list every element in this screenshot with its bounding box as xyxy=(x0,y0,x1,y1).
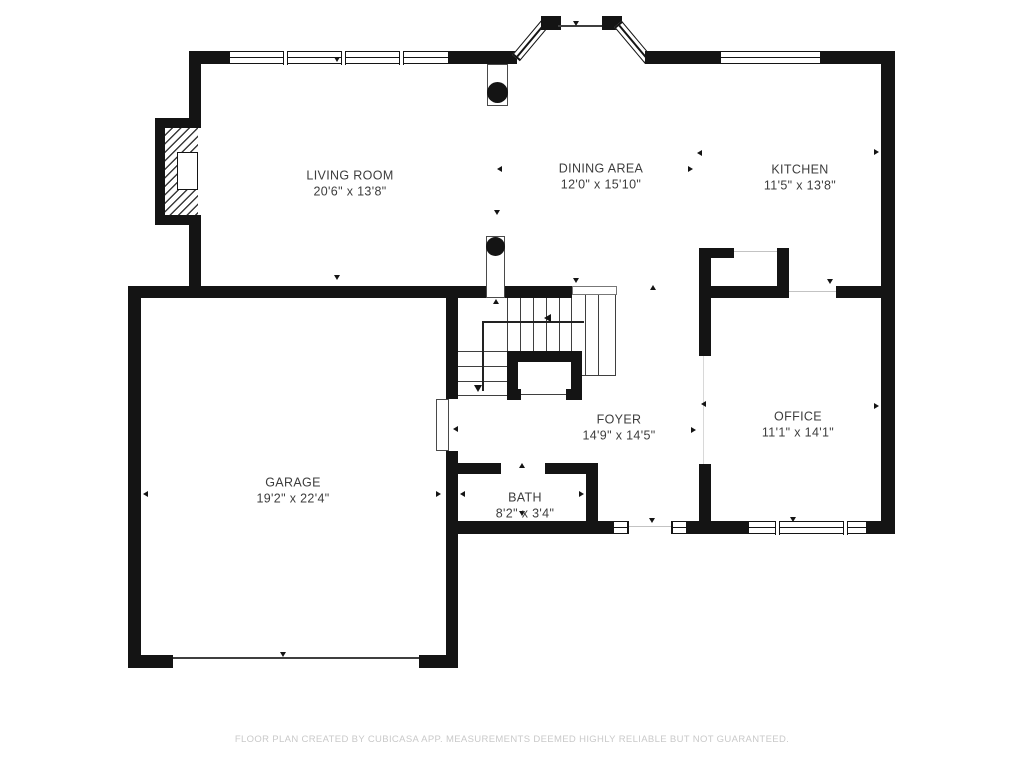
window-glass-line xyxy=(614,527,627,528)
marker-right-icon xyxy=(688,166,693,172)
door-leaf xyxy=(436,399,449,451)
window xyxy=(612,521,629,534)
wall-segment xyxy=(446,463,501,474)
room-dimensions: 19'2" x 22'4" xyxy=(256,491,329,507)
room-dimensions: 11'5" x 13'8" xyxy=(764,178,836,194)
marker-left-icon xyxy=(453,426,458,432)
room-name: GARAGE xyxy=(256,476,329,492)
under-stair-closet-wall xyxy=(507,389,521,400)
window-glass-line xyxy=(619,25,648,59)
wall-segment xyxy=(868,521,895,534)
window xyxy=(747,521,868,534)
marker-down-icon xyxy=(649,518,655,523)
column xyxy=(486,237,505,256)
room-dimensions: 12'0" x 15'10" xyxy=(559,177,643,193)
wall-segment xyxy=(699,286,789,298)
window-glass-line xyxy=(673,527,686,528)
marker-down-icon xyxy=(280,652,286,657)
room-label-living-room: LIVING ROOM 20'6" x 13'8" xyxy=(306,169,393,200)
marker-right-icon xyxy=(579,491,584,497)
marker-left-icon xyxy=(701,401,706,407)
wall-segment xyxy=(446,521,612,534)
window-glass-line xyxy=(721,57,820,58)
marker-right-icon xyxy=(436,491,441,497)
window-mullion xyxy=(399,51,404,65)
stair-tread xyxy=(585,295,586,376)
wall-segment xyxy=(450,51,517,64)
marker-down-icon xyxy=(790,517,796,522)
wall-segment xyxy=(645,51,719,64)
foyer-office-opening-line xyxy=(703,356,704,464)
stair-direction-line xyxy=(482,321,584,323)
stair-flight-edge xyxy=(615,295,616,376)
window xyxy=(671,521,688,534)
room-name: KITCHEN xyxy=(764,163,836,179)
marker-right-icon xyxy=(874,403,879,409)
wall-segment xyxy=(128,655,173,668)
marker-down-icon xyxy=(827,279,833,284)
room-label-dining-area: DINING AREA 12'0" x 15'10" xyxy=(559,162,643,193)
marker-down-icon xyxy=(573,21,579,26)
stair-opening-edge xyxy=(572,286,617,295)
marker-down-icon xyxy=(573,278,579,283)
room-dimensions: 14'9" x 14'5" xyxy=(582,428,655,444)
room-dimensions: 11'1" x 14'1" xyxy=(762,425,834,441)
wall-segment xyxy=(189,51,201,121)
room-dimensions: 8'2" x 3'4" xyxy=(496,506,555,522)
room-label-foyer: FOYER 14'9" x 14'5" xyxy=(582,413,655,444)
room-label-kitchen: KITCHEN 11'5" x 13'8" xyxy=(764,163,836,194)
bay-wall-cap xyxy=(541,16,561,30)
wall-segment xyxy=(128,286,572,298)
under-stair-closet-wall xyxy=(566,389,582,400)
bay-window-top-line xyxy=(558,25,604,27)
room-name: OFFICE xyxy=(762,410,834,426)
wall-segment xyxy=(699,248,734,258)
window-mullion xyxy=(775,521,780,535)
room-name: DINING AREA xyxy=(559,162,643,178)
stair-tread xyxy=(520,298,521,352)
garage-door-line xyxy=(173,657,419,659)
marker-left-icon xyxy=(497,166,502,172)
fireplace-wall xyxy=(155,118,201,128)
wall-segment xyxy=(446,286,458,399)
office-door-line xyxy=(789,291,836,292)
fireplace-wall xyxy=(155,215,201,225)
marker-up-icon xyxy=(493,299,499,304)
wall-segment xyxy=(699,248,711,356)
window-mullion xyxy=(283,51,288,65)
column xyxy=(487,82,508,103)
window-glass-line xyxy=(749,527,866,528)
entry-door-line xyxy=(629,526,671,527)
room-dimensions: 20'6" x 13'8" xyxy=(306,184,393,200)
stair-tread xyxy=(546,298,547,352)
room-name: FOYER xyxy=(582,413,655,429)
pantry-opening-line xyxy=(734,251,777,252)
marker-up-icon xyxy=(650,285,656,290)
room-name: BATH xyxy=(496,491,555,507)
marker-left-icon xyxy=(460,491,465,497)
marker-right-icon xyxy=(691,427,696,433)
stair-direction-line xyxy=(482,321,484,391)
room-label-office: OFFICE 11'1" x 14'1" xyxy=(762,410,834,441)
marker-down-icon xyxy=(494,210,500,215)
marker-down-icon xyxy=(334,57,340,62)
closet-door-line xyxy=(521,394,566,395)
stair-direction-arrow-icon xyxy=(474,385,482,392)
marker-left-icon xyxy=(697,150,702,156)
stair-tread xyxy=(571,298,572,352)
marker-down-icon xyxy=(334,275,340,280)
footer-disclaimer: FLOOR PLAN CREATED BY CUBICASA APP. MEAS… xyxy=(0,734,1024,745)
fireplace-firebox xyxy=(177,152,198,190)
stair-tread xyxy=(598,295,599,376)
marker-down-icon xyxy=(831,57,837,62)
wall-segment xyxy=(446,451,458,668)
fireplace-wall xyxy=(155,118,165,225)
marker-up-icon xyxy=(519,463,525,468)
room-label-garage: GARAGE 19'2" x 22'4" xyxy=(256,476,329,507)
window-mullion xyxy=(843,521,848,535)
wall-segment xyxy=(836,286,895,298)
stair-tread xyxy=(507,298,508,352)
stair-direction-arrow-icon xyxy=(544,314,551,322)
room-name: LIVING ROOM xyxy=(306,169,393,185)
window-mullion xyxy=(341,51,346,65)
room-label-bath: BATH 8'2" x 3'4" xyxy=(496,491,555,522)
marker-left-icon xyxy=(143,491,148,497)
wall-segment xyxy=(128,286,141,668)
stair-tread xyxy=(533,298,534,352)
marker-right-icon xyxy=(874,149,879,155)
window xyxy=(719,51,822,64)
floor-plan-canvas: LIVING ROOM 20'6" x 13'8" DINING AREA 12… xyxy=(0,0,1024,768)
stair-tread xyxy=(559,298,560,352)
stair-winder-line xyxy=(458,395,507,396)
wall-segment xyxy=(688,521,747,534)
stair-flight-edge xyxy=(582,375,616,376)
